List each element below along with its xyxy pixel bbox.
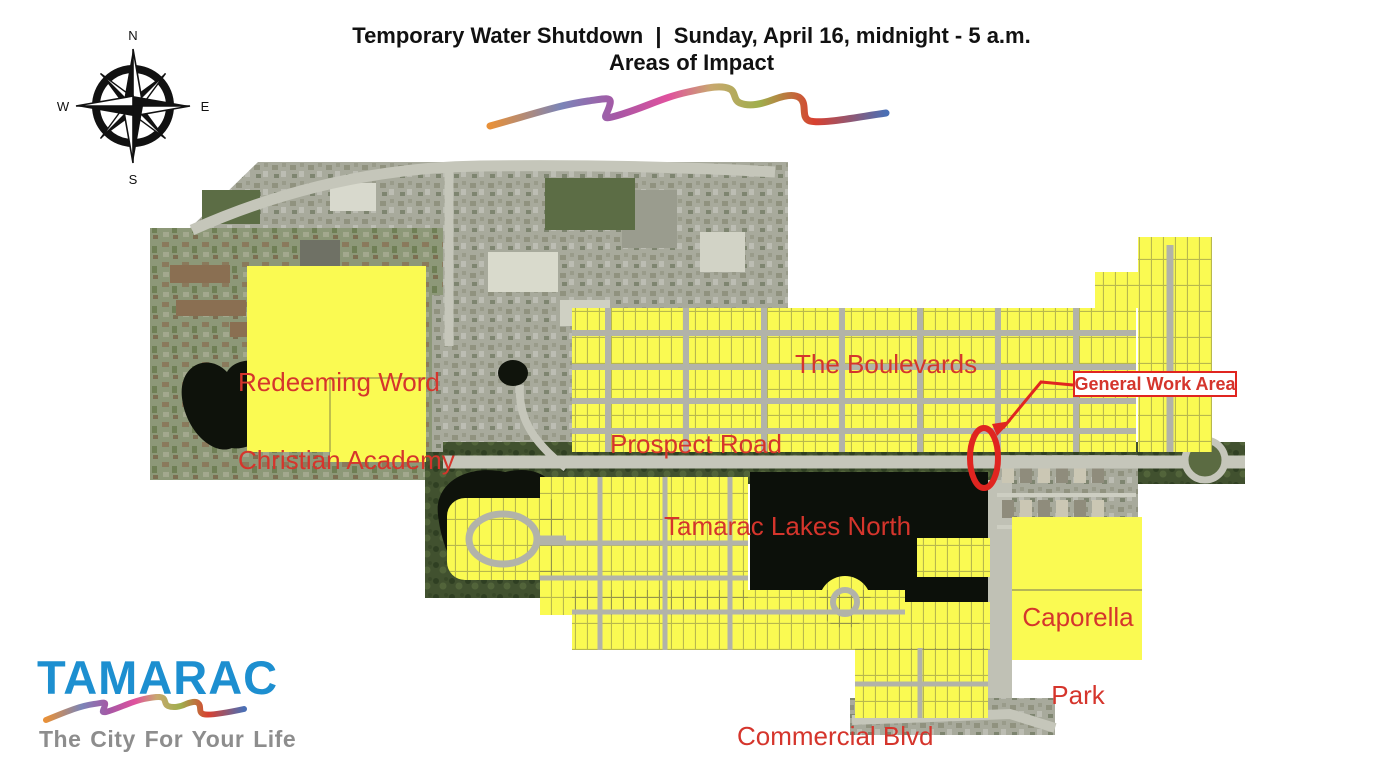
general-work-area-callout: General Work Area (1073, 371, 1237, 397)
label-caporella-park: Caporella Park (1014, 552, 1142, 760)
tamarac-logo-tagline: The City For Your Life (39, 726, 296, 753)
tamarac-logo-wave-icon (40, 694, 250, 728)
label-prospect-road: Prospect Road (610, 431, 782, 457)
label-tamarac-lakes-north: Tamarac Lakes North (664, 513, 911, 539)
label-redeeming-word: Redeeming Word Christian Academy (238, 317, 455, 525)
flyer-canvas: Temporary Water Shutdown | Sunday, April… (0, 0, 1383, 778)
label-the-boulevards: The Boulevards (795, 351, 977, 377)
lake-pond (498, 360, 528, 386)
label-commercial-blvd: Commercial Blvd (737, 723, 934, 749)
